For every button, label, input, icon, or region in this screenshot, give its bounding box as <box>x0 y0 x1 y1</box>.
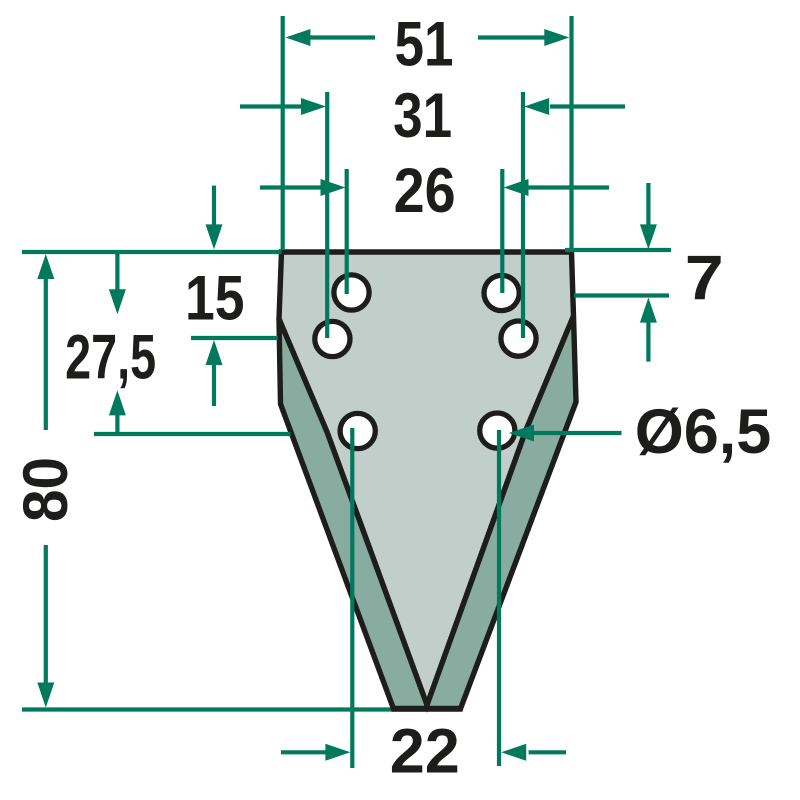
svg-text:80: 80 <box>11 457 81 522</box>
svg-text:7: 7 <box>685 244 724 314</box>
svg-text:27,5: 27,5 <box>65 323 156 393</box>
svg-text:22: 22 <box>390 717 460 787</box>
svg-text:Ø6,5: Ø6,5 <box>635 397 772 467</box>
svg-text:15: 15 <box>185 264 245 334</box>
svg-text:26: 26 <box>394 156 456 226</box>
svg-text:51: 51 <box>395 10 454 80</box>
svg-text:31: 31 <box>393 81 452 151</box>
